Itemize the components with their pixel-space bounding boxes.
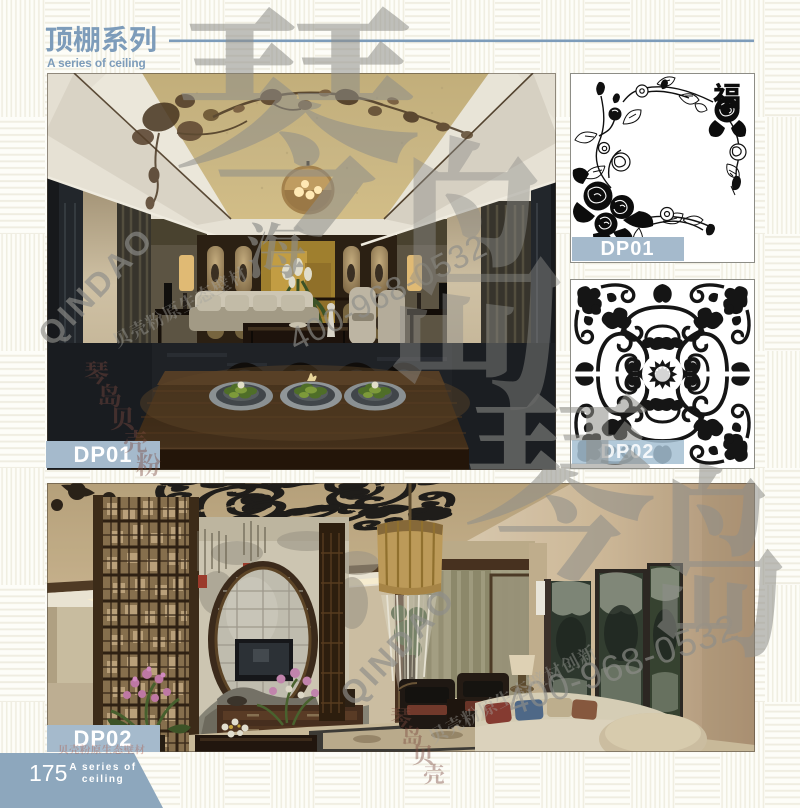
svg-text:A series of ceiling: A series of ceiling [47,56,146,70]
